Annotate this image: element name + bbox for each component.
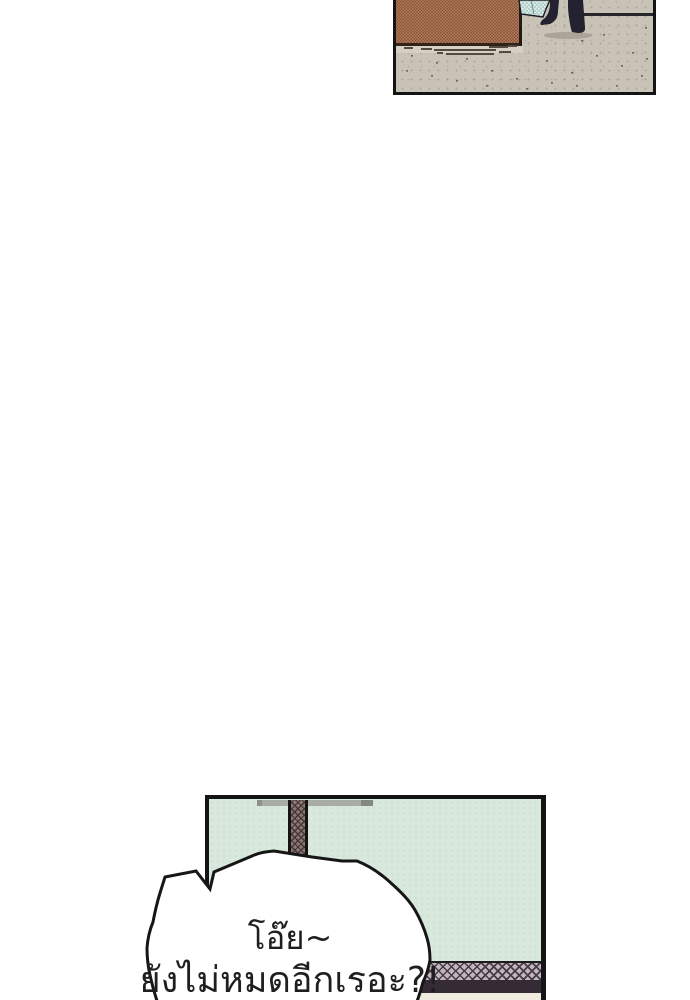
wall-shadow-dash bbox=[499, 51, 511, 53]
wall-shadow-dash bbox=[489, 46, 508, 48]
bubble-line-2: ยังไม่หมดอีกเรอะ?! bbox=[125, 963, 455, 999]
wall-shadow-dash bbox=[421, 48, 432, 50]
beam-end-cap bbox=[257, 800, 262, 806]
wall-shadow-dash bbox=[446, 53, 494, 55]
ceiling-beam bbox=[257, 800, 373, 806]
wall-shadow-dash bbox=[404, 47, 413, 49]
street-panel bbox=[393, 0, 656, 95]
wall-shadow-dash bbox=[434, 49, 496, 51]
beam-end-cap bbox=[361, 800, 373, 806]
orange-halftone-wall bbox=[396, 0, 522, 46]
front-leg bbox=[568, 0, 585, 33]
walking-figure bbox=[514, 0, 614, 46]
bubble-line-1: โอ๊ย~ bbox=[140, 921, 440, 954]
comic-page: โอ๊ย~ ยังไม่หมดอีกเรอะ?! bbox=[0, 0, 690, 1000]
skirt-hem-fabric bbox=[519, 0, 550, 17]
feet-shadow bbox=[544, 32, 592, 39]
wall-shadow-dash bbox=[437, 52, 443, 54]
